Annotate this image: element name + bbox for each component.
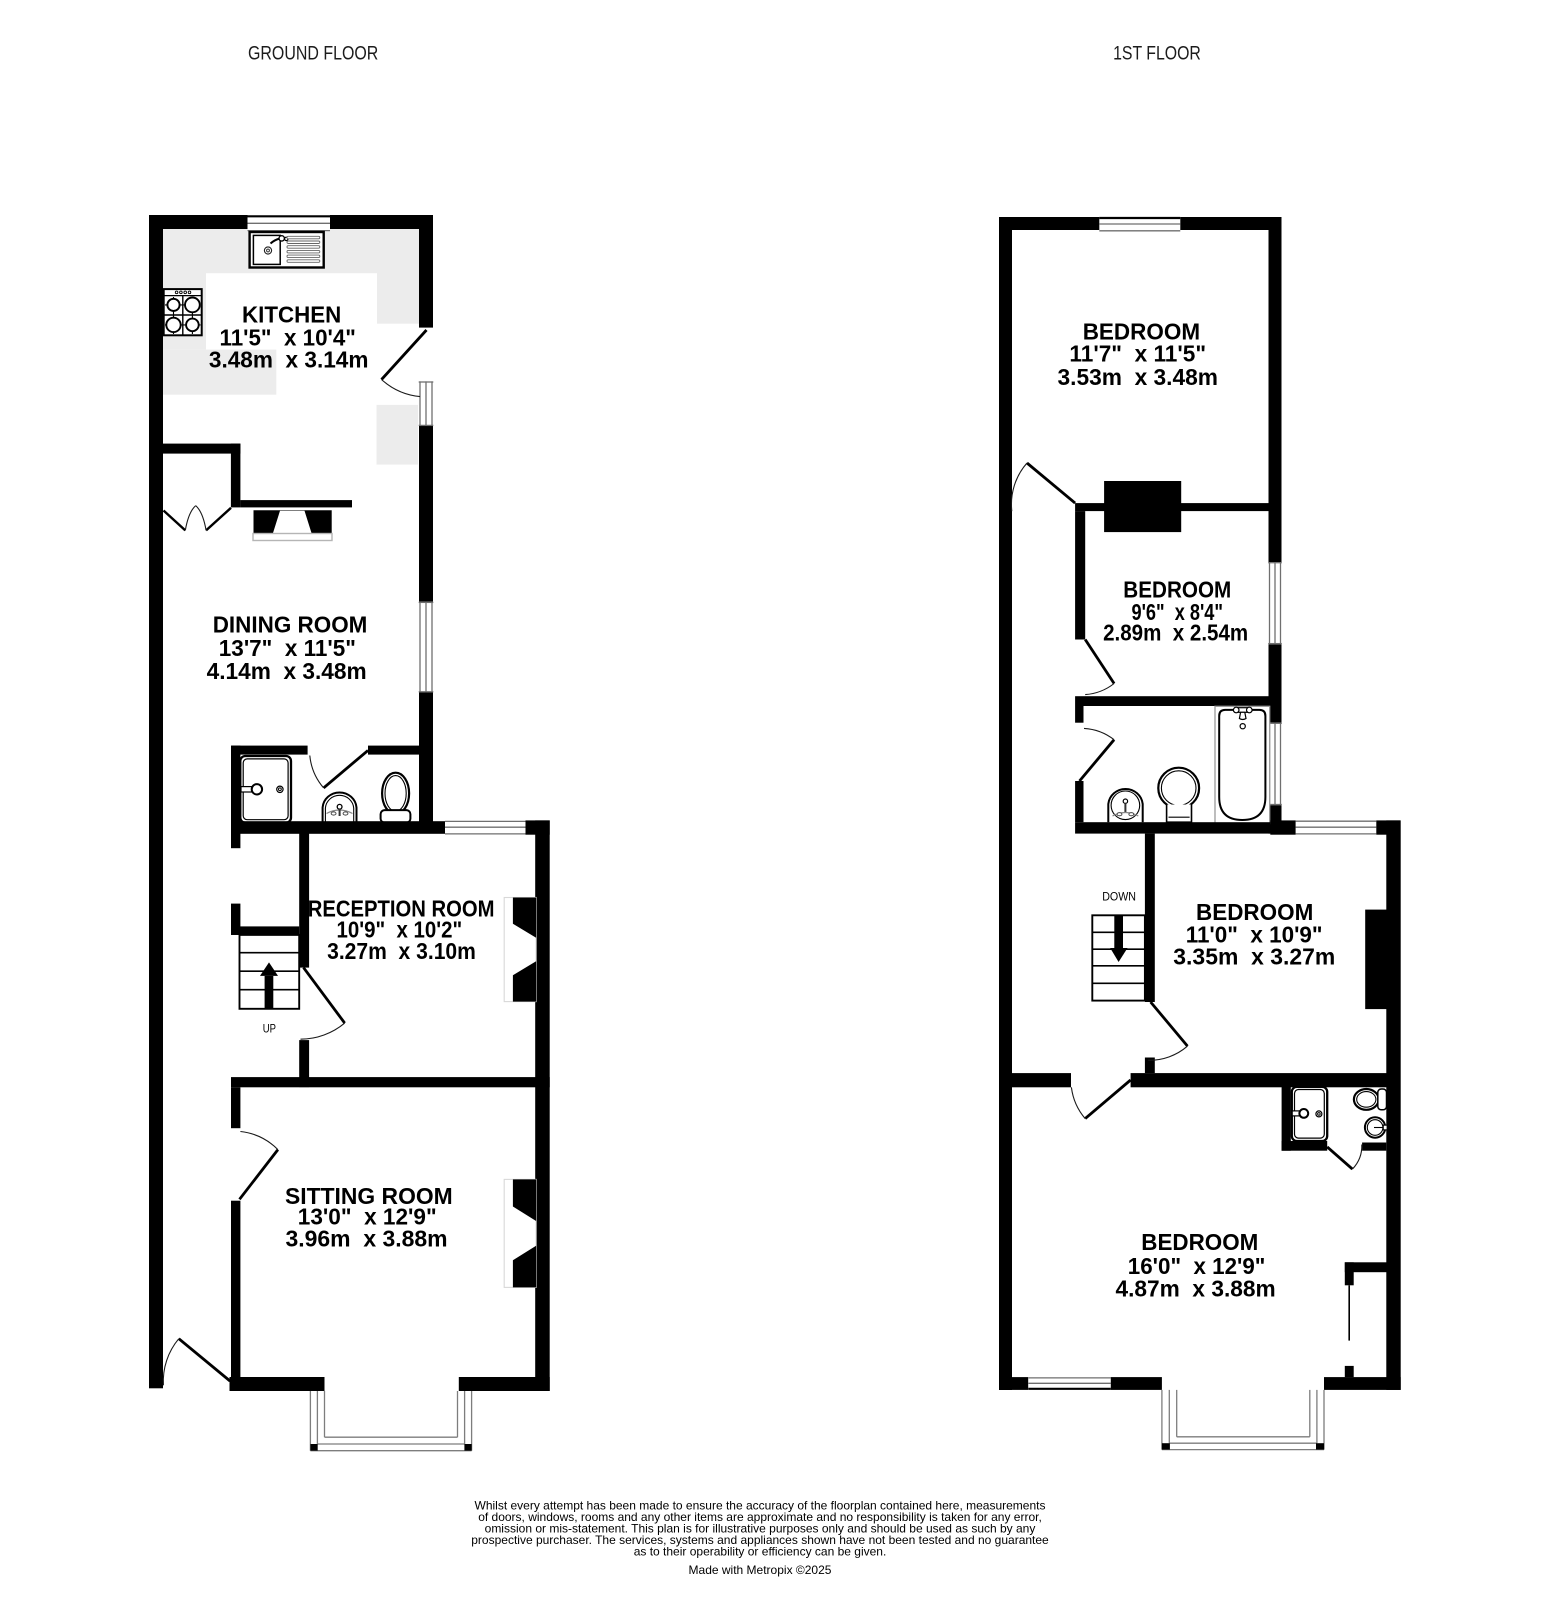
svg-text:1ST FLOOR: 1ST FLOOR	[1113, 43, 1201, 65]
svg-text:11'7" x 11'5": 11'7" x 11'5"	[1069, 341, 1206, 367]
svg-text:GROUND FLOOR: GROUND FLOOR	[248, 43, 378, 65]
svg-text:4.87m x 3.88m: 4.87m x 3.88m	[1116, 1275, 1276, 1301]
svg-text:BEDROOM: BEDROOM	[1141, 1229, 1258, 1255]
svg-text:4.14m x 3.48m: 4.14m x 3.48m	[207, 658, 367, 684]
svg-text:UP: UP	[263, 1021, 276, 1035]
svg-text:DOWN: DOWN	[1102, 890, 1136, 904]
svg-text:3.96m x 3.88m: 3.96m x 3.88m	[286, 1226, 448, 1252]
svg-text:2.89m x 2.54m: 2.89m x 2.54m	[1103, 619, 1248, 645]
svg-text:3.48m x 3.14m: 3.48m x 3.14m	[209, 346, 369, 372]
svg-text:3.53m x 3.48m: 3.53m x 3.48m	[1058, 364, 1219, 390]
svg-text:DINING ROOM: DINING ROOM	[213, 611, 368, 637]
svg-text:KITCHEN: KITCHEN	[242, 301, 341, 327]
svg-text:as to their operability or eff: as to their operability or efficiency ca…	[634, 1544, 887, 1558]
svg-text:Made with Metropix ©2025: Made with Metropix ©2025	[689, 1563, 832, 1577]
svg-text:3.35m x 3.27m: 3.35m x 3.27m	[1173, 944, 1335, 970]
svg-text:3.27m x 3.10m: 3.27m x 3.10m	[327, 938, 476, 964]
